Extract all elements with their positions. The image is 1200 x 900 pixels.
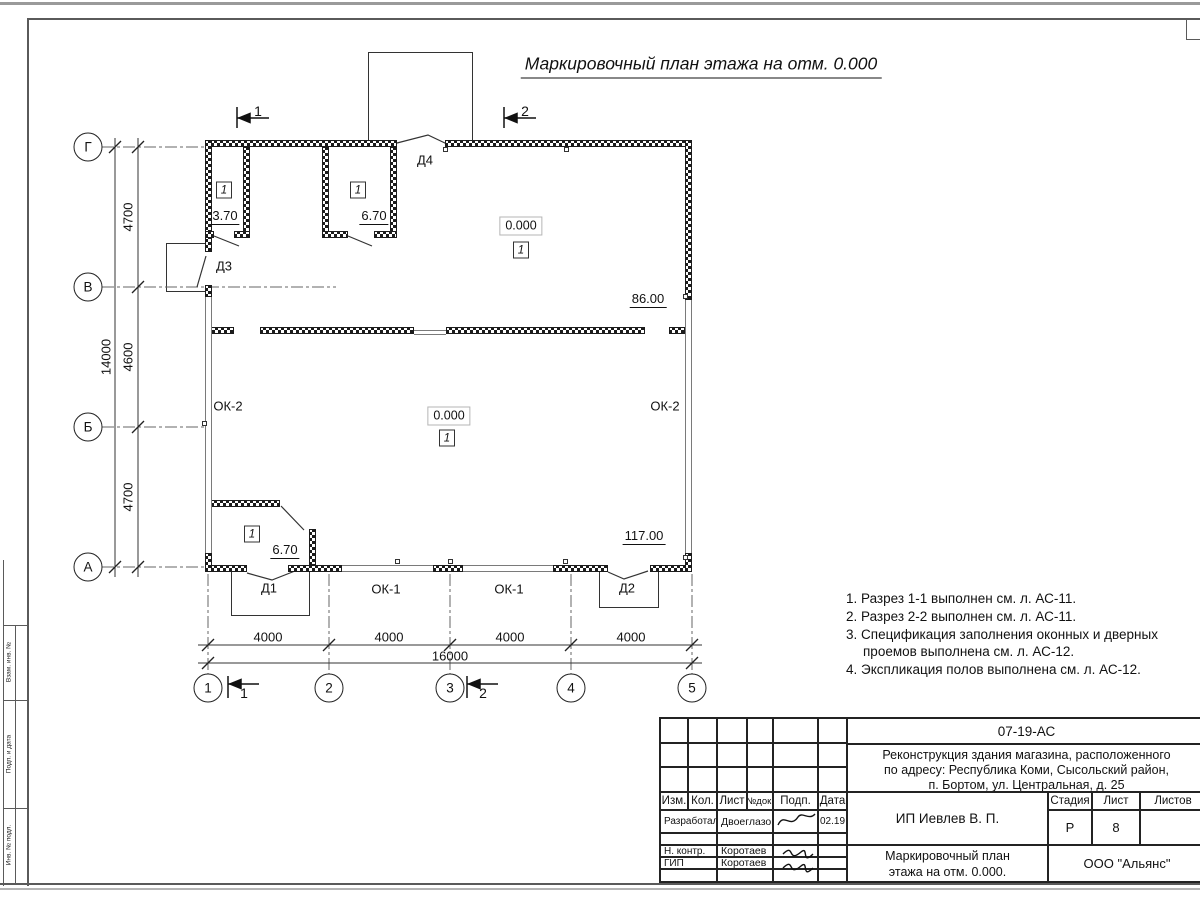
revision-cell — [717, 718, 747, 743]
tb-project-line: Реконструкция здания магазина, расположе… — [848, 748, 1200, 763]
wall-segment — [260, 327, 414, 334]
tb-sheets-label: Листов — [1140, 792, 1200, 810]
tb-project-line: по адресу: Республика Коми, Сысольский р… — [848, 763, 1200, 778]
door-label-d4: Д4 — [417, 154, 433, 167]
tb-role: ГИП — [660, 857, 717, 869]
wall-segment — [553, 565, 608, 572]
elevation-mark: 0.000 — [427, 407, 470, 426]
dim-14000: 14000 — [100, 339, 113, 375]
note-item: 3. Спецификация заполнения оконных и две… — [846, 626, 1181, 662]
tb-name: Коротаев — [717, 857, 773, 869]
room-number: 1 — [216, 182, 232, 199]
tb-sheet-value: 8 — [1092, 810, 1140, 845]
window-ok1 — [342, 565, 433, 572]
dim-4000: 4000 — [254, 631, 283, 644]
section-marks — [228, 107, 536, 698]
room-area: 6.70 — [359, 209, 388, 225]
partition-segment — [322, 231, 348, 238]
revision-cell — [747, 743, 773, 767]
partition-segment — [390, 147, 397, 232]
notes-block: 1. Разрез 1-1 выполнен см. л. АС-11. 2. … — [846, 590, 1181, 679]
window-ok1 — [463, 565, 553, 572]
revision-cell — [818, 743, 847, 767]
room-area: 6.70 — [270, 543, 299, 559]
tb-sheet-label: Лист — [1092, 792, 1140, 810]
dim-4000: 4000 — [617, 631, 646, 644]
section-label-2-top: 2 — [521, 104, 529, 118]
wall-segment — [205, 285, 212, 297]
tb-col-list: Лист — [717, 792, 747, 810]
tb-stage-value: Р — [1048, 810, 1092, 845]
tb-col-ndok: №док. — [747, 792, 773, 810]
revision-cell — [688, 718, 717, 743]
tb-company: ООО "Альянс" — [1048, 845, 1200, 882]
axis-bubble-5: 5 — [678, 674, 707, 703]
tb-col-data: Дата — [818, 792, 847, 810]
dim-4000: 4000 — [375, 631, 404, 644]
tb-project-line: п. Бортом, ул. Центральная, д. 25 — [848, 778, 1200, 793]
jamb-marker — [564, 147, 569, 152]
revision-cell — [773, 718, 818, 743]
wall-segment — [205, 553, 212, 572]
axis-bubble-2: 2 — [315, 674, 344, 703]
tb-sheet-title: Маркировочный план этажа на отм. 0.000. — [847, 845, 1048, 882]
revision-cell — [660, 767, 688, 792]
elevation-mark: 0.000 — [499, 217, 542, 236]
tb-sheet-title-line: Маркировочный план — [848, 849, 1047, 865]
tb-empty — [660, 833, 717, 845]
axis-bubble-a: А — [74, 553, 103, 582]
section-label-2-bottom: 2 — [479, 686, 487, 700]
room-area: 117.00 — [623, 529, 666, 545]
axis-bubble-b: Б — [74, 413, 103, 442]
wall-segment — [433, 565, 463, 572]
partition-segment — [309, 529, 316, 565]
wall-segment — [205, 140, 397, 147]
opening-lintel — [414, 330, 446, 335]
revision-cell — [660, 743, 688, 767]
wall-segment — [445, 140, 692, 147]
tb-client: ИП Иевлев В. П. — [847, 792, 1048, 845]
tb-name: Коротаев — [717, 845, 773, 857]
tb-stage-label: Стадия — [1048, 792, 1092, 810]
partition-segment — [205, 231, 214, 238]
dim-4600: 4600 — [122, 343, 135, 372]
revision-cell — [717, 743, 747, 767]
tb-role: Н. контр. — [660, 845, 717, 857]
dimension-lines — [115, 138, 702, 663]
revision-cell — [818, 718, 847, 743]
tb-date: 02.19 — [818, 810, 847, 833]
jamb-marker — [443, 147, 448, 152]
partition-segment — [374, 231, 397, 238]
door-label-d3: Д3 — [216, 260, 232, 273]
window-label-ok2-left: ОК-2 — [213, 400, 242, 413]
window-label-ok1-right: ОК-1 — [494, 583, 523, 596]
tb-name: Двоеглазов — [717, 810, 773, 833]
dim-16000: 16000 — [432, 650, 468, 663]
drawing-sheet: Взам. инв. № Подп. и дата Инв. № подл. М… — [0, 0, 1200, 900]
dim-4000: 4000 — [496, 631, 525, 644]
revision-cell — [773, 743, 818, 767]
tb-empty — [717, 869, 773, 882]
jamb-marker — [683, 555, 688, 560]
tb-empty — [717, 833, 773, 845]
tb-empty — [660, 869, 717, 882]
axis-bubble-v: В — [74, 273, 103, 302]
note-item: 1. Разрез 1-1 выполнен см. л. АС-11. — [846, 590, 1181, 608]
window-ok2 — [685, 300, 692, 553]
section-label-1-bottom: 1 — [240, 686, 248, 700]
axis-bubble-4: 4 — [557, 674, 586, 703]
partition-segment — [243, 147, 250, 232]
axis-bubble-g: Г — [74, 133, 103, 162]
revision-cell — [747, 767, 773, 792]
tb-empty — [818, 845, 847, 857]
dim-4700: 4700 — [122, 203, 135, 232]
jamb-marker — [395, 559, 400, 564]
tb-empty — [818, 869, 847, 882]
note-item: 2. Разрез 2-2 выполнен см. л. АС-11. — [846, 608, 1181, 626]
wall-segment — [288, 565, 342, 572]
revision-cell — [773, 767, 818, 792]
partition-segment — [234, 231, 250, 238]
room-area: 3.70 — [210, 209, 239, 225]
partition-segment — [205, 500, 280, 507]
room-number: 1 — [439, 430, 455, 447]
wall-segment — [669, 327, 685, 334]
room-number: 1 — [513, 242, 529, 259]
dim-4700: 4700 — [122, 483, 135, 512]
tb-col-kol: Кол. — [688, 792, 717, 810]
tb-empty — [818, 833, 847, 845]
jamb-marker — [202, 421, 207, 426]
room-number: 1 — [350, 182, 366, 199]
jamb-marker — [563, 559, 568, 564]
window-label-ok1-left: ОК-1 — [371, 583, 400, 596]
tb-doc-code: 07-19-АС — [847, 718, 1200, 744]
door-label-d1: Д1 — [261, 582, 277, 595]
tb-empty — [818, 857, 847, 869]
revision-cell — [688, 767, 717, 792]
door-swing-lines — [197, 135, 648, 580]
tb-role: Разработал — [660, 810, 717, 833]
jamb-marker — [683, 294, 688, 299]
note-item: 4. Экспликация полов выполнена см. л. АС… — [846, 661, 1181, 679]
wall-segment — [446, 327, 645, 334]
revision-cell — [818, 767, 847, 792]
dimension-ticks — [109, 141, 698, 669]
revision-cell — [660, 718, 688, 743]
jamb-marker — [448, 559, 453, 564]
tb-col-izm: Изм. — [660, 792, 688, 810]
wall-segment — [685, 140, 692, 300]
axis-bubble-3: 3 — [436, 674, 465, 703]
door-label-d2: Д2 — [619, 582, 635, 595]
room-number: 1 — [244, 526, 260, 543]
partition-segment — [322, 147, 329, 232]
window-label-ok2-right: ОК-2 — [650, 400, 679, 413]
signature-squiggles — [773, 808, 819, 882]
revision-cell — [747, 718, 773, 743]
room-area: 86.00 — [630, 292, 667, 308]
axis-bubble-1: 1 — [194, 674, 223, 703]
tb-project: Реконструкция здания магазина, расположе… — [847, 744, 1200, 792]
tb-sheets-value — [1140, 810, 1200, 845]
section-label-1-top: 1 — [254, 104, 262, 118]
revision-cell — [717, 767, 747, 792]
tb-sheet-title-line: этажа на отм. 0.000. — [848, 865, 1047, 881]
revision-cell — [688, 743, 717, 767]
